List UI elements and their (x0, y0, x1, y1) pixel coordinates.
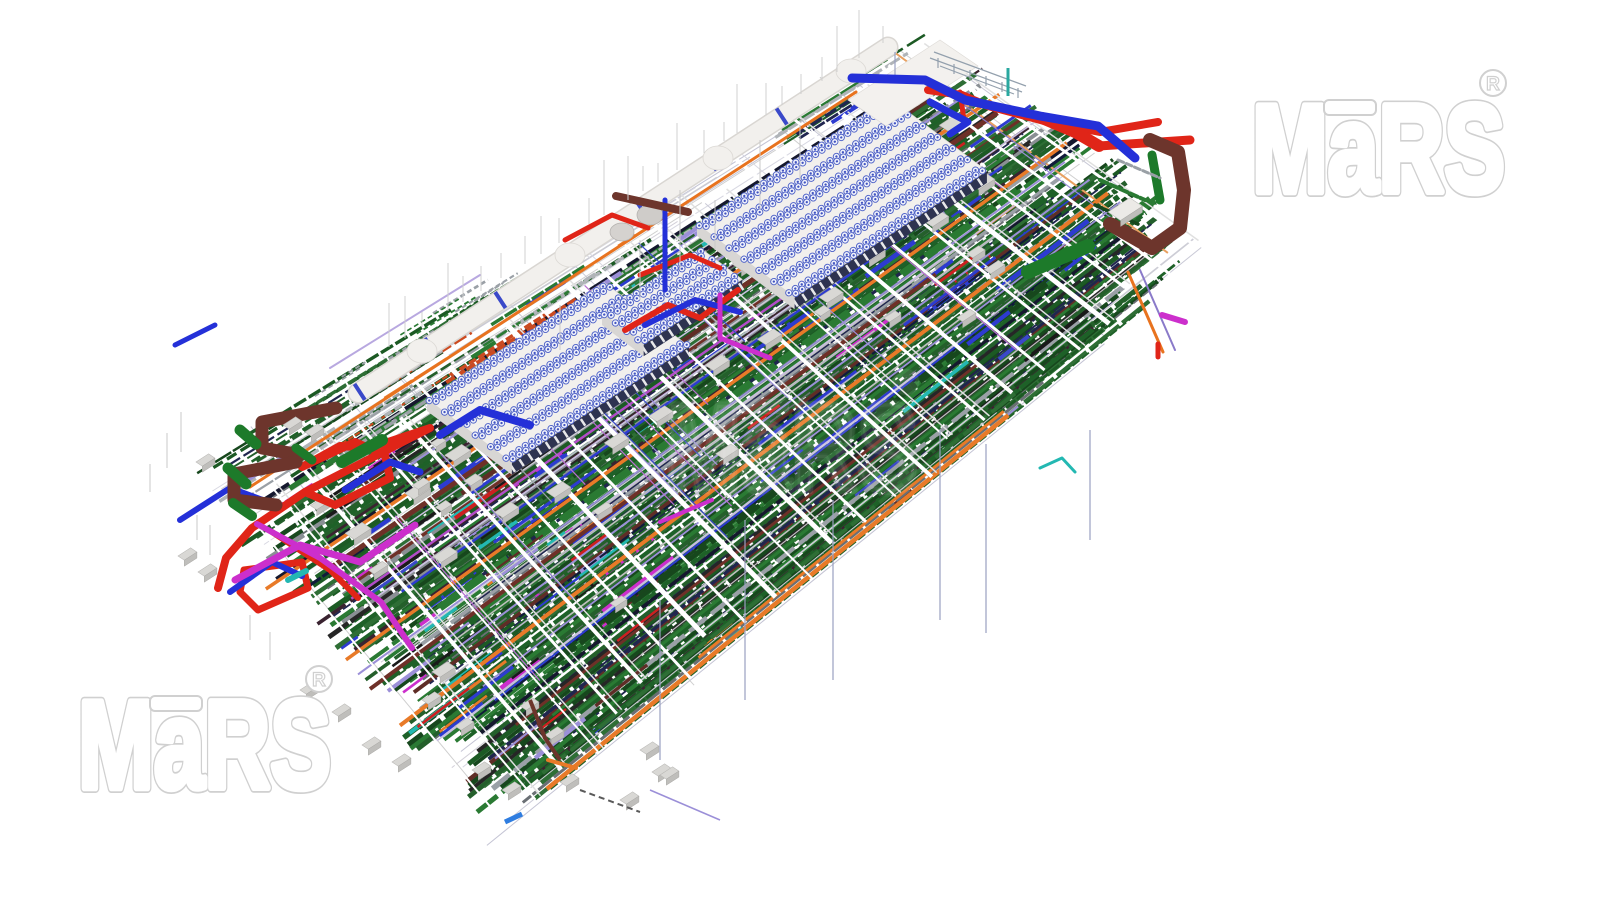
svg-text:R: R (312, 670, 326, 691)
svg-text:MaRS: MaRS (665, 379, 918, 518)
svg-text:R: R (1486, 74, 1500, 95)
svg-text:MaRS: MaRS (1252, 80, 1505, 219)
svg-text:R: R (899, 373, 913, 394)
svg-text:MaRS: MaRS (78, 676, 331, 815)
